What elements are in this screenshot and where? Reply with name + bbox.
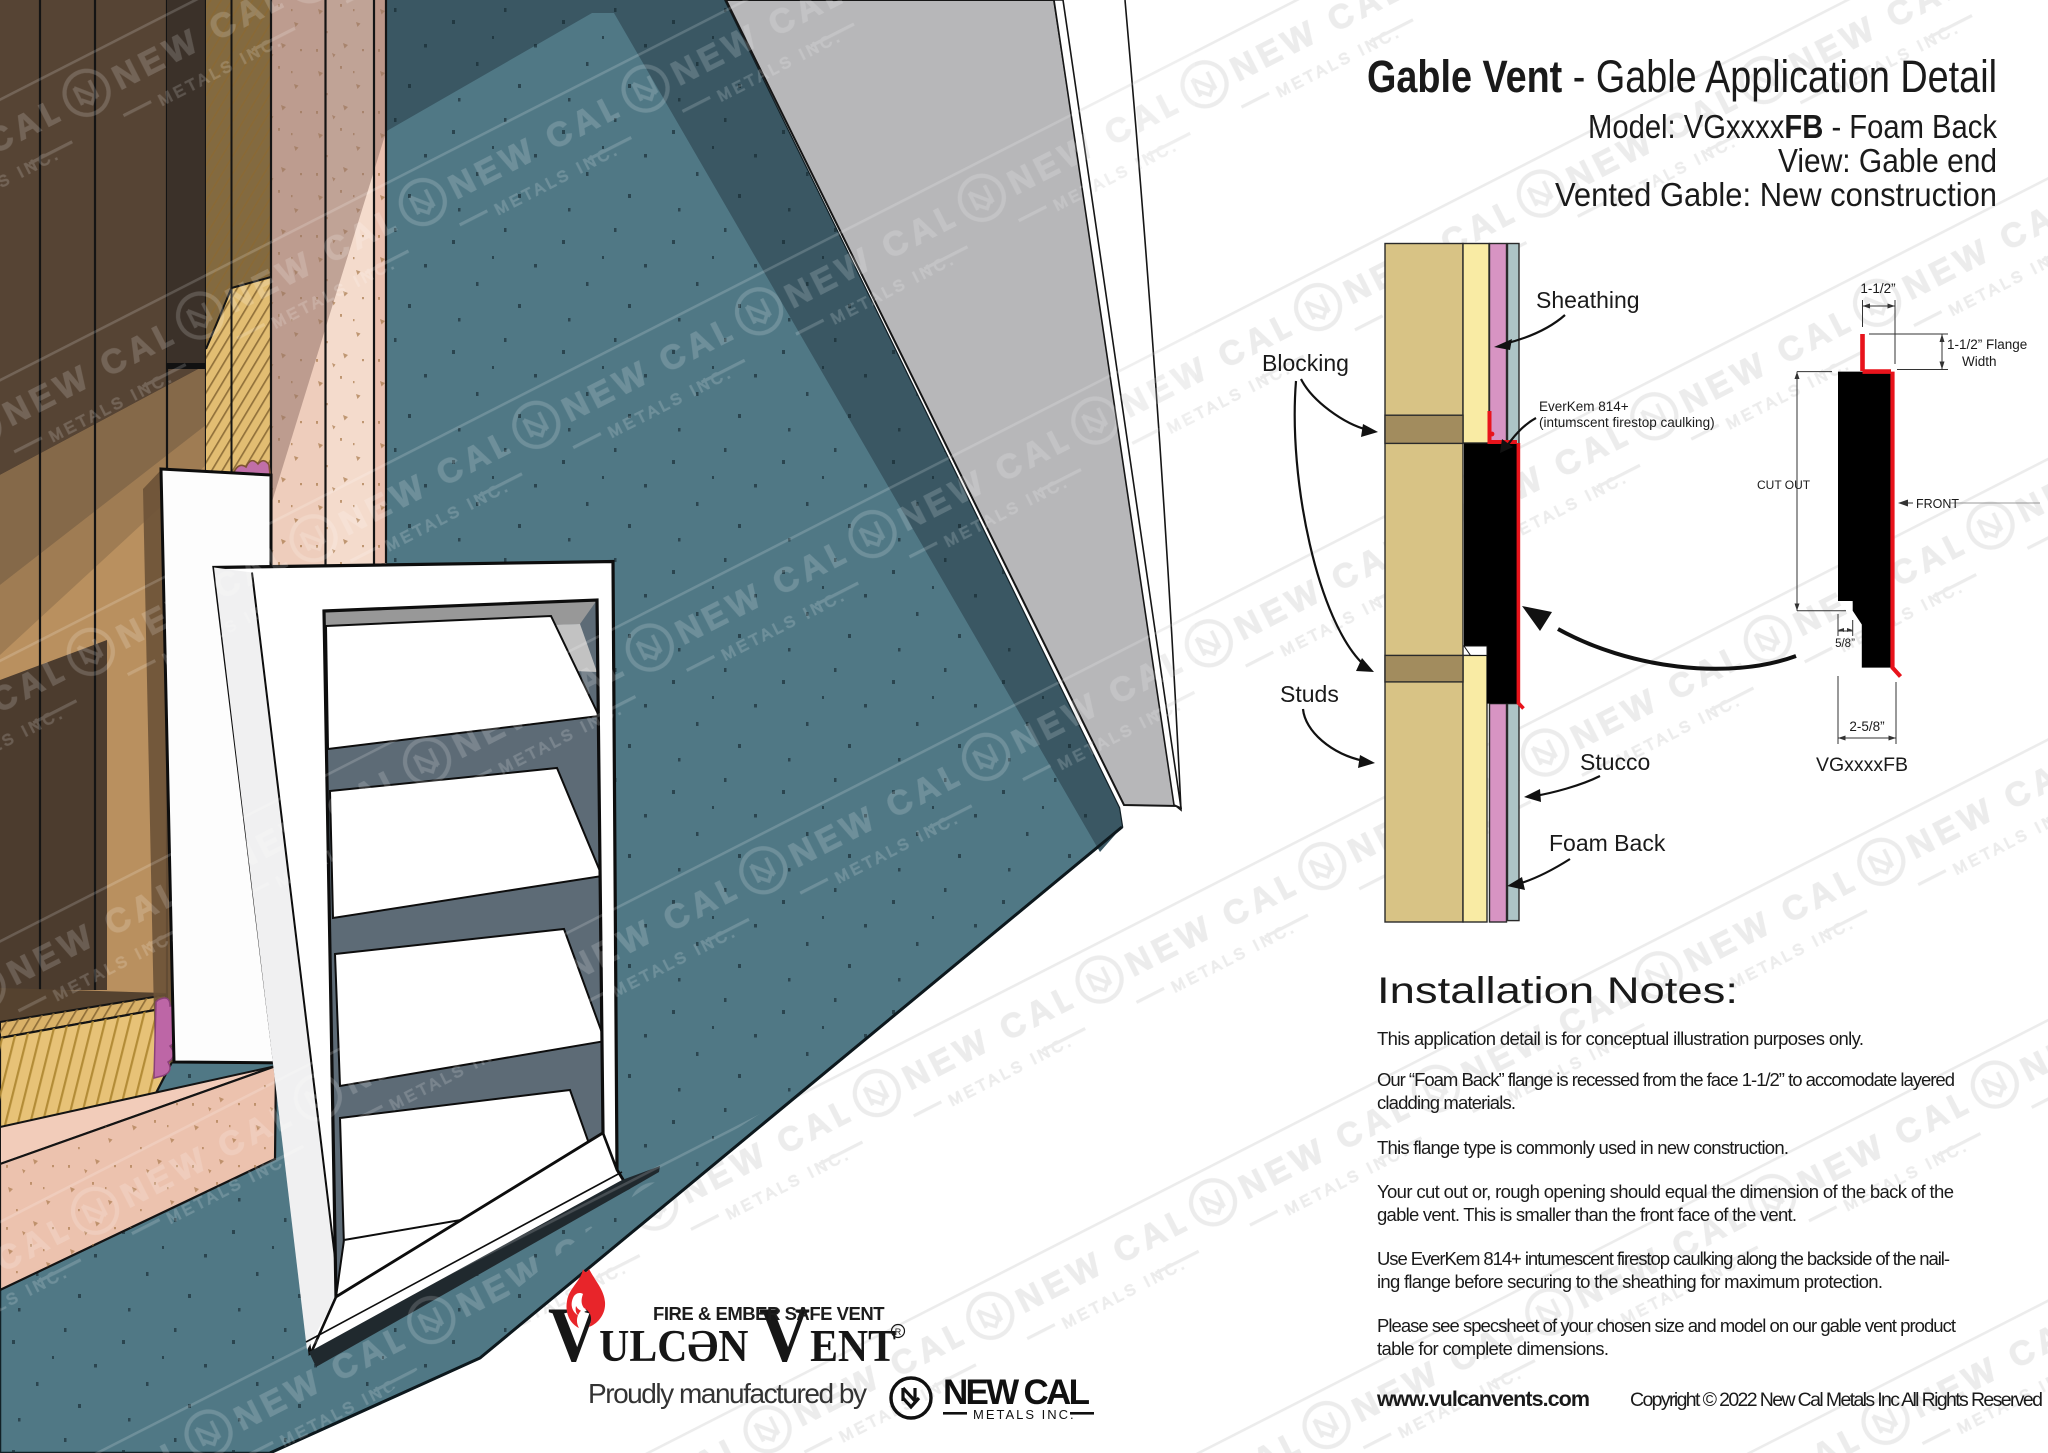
svg-text:Sheathing: Sheathing	[1536, 287, 1640, 313]
svg-text:Please see specsheet of your c: Please see specsheet of your chosen size…	[1377, 1315, 1956, 1336]
svg-text:Vented Gable: New construction: Vented Gable: New construction	[1555, 176, 1997, 213]
svg-text:EverKem 814+: EverKem 814+	[1539, 399, 1629, 414]
svg-text:Stucco: Stucco	[1580, 749, 1650, 775]
svg-text:Foam Back: Foam Back	[1549, 830, 1666, 856]
svg-text:gable vent. This is smaller th: gable vent. This is smaller than the fro…	[1377, 1204, 1797, 1225]
svg-text:VGxxxxFB: VGxxxxFB	[1816, 754, 1908, 776]
svg-text:1-1/2”: 1-1/2”	[1860, 281, 1895, 296]
svg-text:ing flange before securing to: ing flange before securing to the sheath…	[1377, 1271, 1883, 1292]
svg-text:Width: Width	[1962, 354, 1997, 369]
svg-text:Gable Vent - Gable Application: Gable Vent - Gable Application Detail	[1367, 51, 1997, 102]
svg-text:Model: VGxxxxFB - Foam Back: Model: VGxxxxFB - Foam Back	[1588, 108, 1997, 145]
svg-text:R: R	[895, 1327, 902, 1337]
svg-text:Use EverKem 814+ intumescent f: Use EverKem 814+ intumescent firestop ca…	[1377, 1248, 1950, 1269]
svg-text:Our “Foam Back” flange is rece: Our “Foam Back” flange is recessed from …	[1377, 1069, 1955, 1090]
svg-text:CUT OUT: CUT OUT	[1757, 478, 1811, 492]
svg-text:Studs: Studs	[1280, 681, 1339, 707]
svg-text:FIRE & EMBER SAFE VENT: FIRE & EMBER SAFE VENT	[653, 1303, 887, 1324]
svg-text:Proudly manufactured by: Proudly manufactured by	[588, 1378, 867, 1409]
svg-text:This application detail is for: This application detail is for conceptua…	[1377, 1028, 1864, 1049]
svg-text:table for complete dimensions.: table for complete dimensions.	[1377, 1338, 1609, 1359]
svg-text:This flange type is commonly u: This flange type is commonly used in new…	[1377, 1137, 1789, 1158]
svg-text:1-1/2” Flange: 1-1/2” Flange	[1947, 337, 2027, 352]
svg-text:View: Gable end: View: Gable end	[1778, 142, 1997, 179]
svg-text:Blocking: Blocking	[1262, 350, 1349, 376]
svg-text:Copyright © 2022 New Cal Metal: Copyright © 2022 New Cal Metals Inc All …	[1630, 1389, 2043, 1411]
svg-text:Your cut out or, rough opening: Your cut out or, rough opening should eq…	[1377, 1181, 1954, 1202]
svg-text:FRONT: FRONT	[1916, 497, 1959, 511]
svg-text:5/8”: 5/8”	[1835, 638, 1855, 650]
svg-text:METALS INC.: METALS INC.	[973, 1407, 1076, 1422]
svg-text:cladding materials.: cladding materials.	[1377, 1092, 1516, 1113]
svg-text:2-5/8”: 2-5/8”	[1849, 719, 1884, 734]
svg-text:(intumscent firestop caulking): (intumscent firestop caulking)	[1539, 415, 1715, 430]
svg-text:Installation Notes:: Installation Notes:	[1377, 970, 1738, 1011]
svg-text:www.vulcanvents.com: www.vulcanvents.com	[1376, 1387, 1590, 1411]
